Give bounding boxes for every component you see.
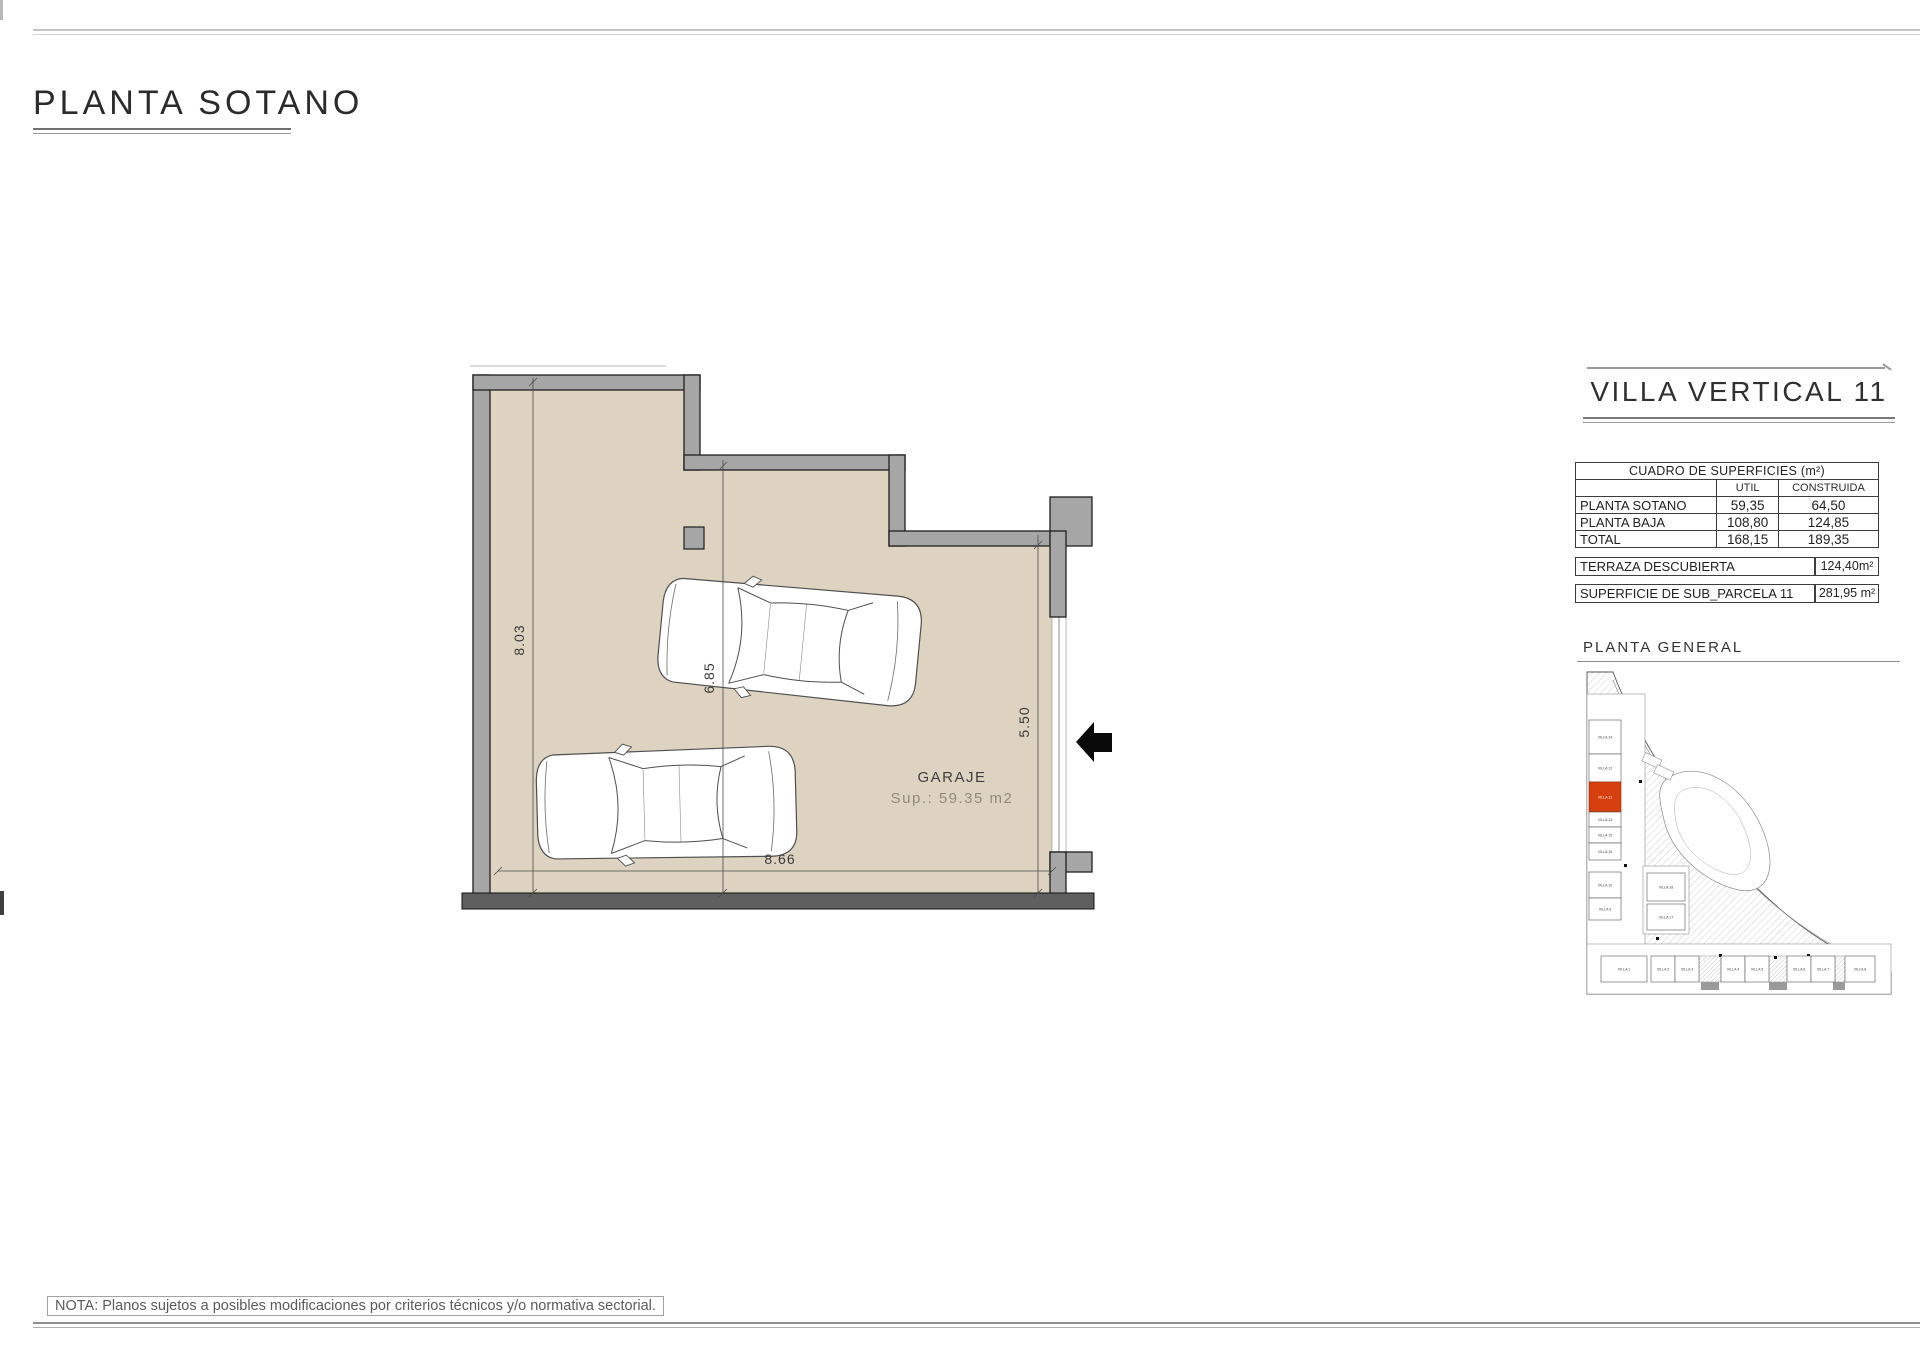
drawing-sheet: PLANTA SOTANO [0,0,1920,1356]
page-title-underline-2 [33,133,291,134]
row-util: 168,15 [1717,531,1779,548]
sheet-edge-mark [0,891,4,915]
pillar [684,527,704,549]
site-driveway [1769,982,1787,990]
site-plan-title: PLANTA GENERAL [1583,639,1743,656]
site-unit-label: VILLA 7 [1817,967,1830,971]
villa-title-underline-2 [1583,422,1895,423]
terraza-row: TERRAZA DESCUBIERTA 124,40m² [1575,557,1879,576]
site-unit-label: VILLA 4 [1727,967,1740,971]
surfaces-table-title: CUADRO DE SUPERFICIES (m²) [1576,463,1879,480]
parcela-label: SUPERFICIE DE SUB_PARCELA 11 [1575,584,1815,603]
surfaces-col-util: UTIL [1717,480,1779,497]
site-driveway [1701,982,1719,990]
wall-top-2 [684,455,905,470]
surfaces-table: CUADRO DE SUPERFICIES (m²) UTIL CONSTRUI… [1575,462,1879,548]
wall-right-stub-bottom [1050,852,1066,895]
sheet-bottom-rule-2 [33,1327,1920,1328]
row-construida: 64,50 [1778,497,1878,514]
wall-left [473,375,490,895]
site-unit-label: VILLA 8 [1854,967,1867,971]
site-unit-label: VILLA 11 [1598,795,1612,799]
row-label: PLANTA SOTANO [1576,497,1717,514]
site-unit-label: VILLA 17 [1659,915,1674,919]
parcela-row: SUPERFICIE DE SUB_PARCELA 11 281,95 m² [1575,584,1879,603]
sheet-top-rule-2 [33,34,1920,35]
site-separator [1769,956,1787,982]
site-separator [1835,956,1845,982]
row-construida: 124,85 [1778,514,1878,531]
car-2 [535,740,797,869]
sheet-corner-mark [0,0,3,20]
villa-title: VILLA VERTICAL 11 [1583,376,1895,408]
site-unit-label: VILLA 6 [1793,967,1806,971]
dim-middle: 6.85 [701,662,717,693]
site-unit-label: VILLA 1 [1618,967,1631,971]
site-unit-label: VILLA 15 [1598,833,1613,837]
site-driveway [1833,982,1845,990]
row-util: 108,80 [1717,514,1779,531]
site-plan-title-underline [1577,661,1900,662]
table-row: PLANTA SOTANO 59,35 64,50 [1576,497,1879,514]
row-construida: 189,35 [1778,531,1878,548]
row-label: PLANTA BAJA [1576,514,1717,531]
entrance-arrow-icon [1076,722,1112,762]
parcela-value: 281,95 m² [1815,584,1879,603]
page-title-underline [33,128,291,130]
terraza-value: 124,40m² [1815,557,1879,576]
sheet-top-rule-1 [33,29,1920,31]
wall-bottom [462,893,1094,909]
surfaces-col-blank [1576,480,1717,497]
room-label: GARAJE [917,769,986,786]
villa-title-underline [1583,417,1895,419]
table-row: TOTAL 168,15 189,35 [1576,531,1879,548]
floor-plan: 8.03 6.85 5.50 8.66 GARAJE Sup.: 59.35 m… [430,340,1140,940]
site-unit-label: VILLA 10 [1598,883,1613,887]
site-unit-label: VILLA 14 [1598,735,1613,739]
surfaces-col-construida: CONSTRUIDA [1778,480,1878,497]
dim-left: 8.03 [511,624,527,655]
site-unit-label: VILLA 12 [1598,766,1613,770]
site-unit-label: VILLA 3 [1681,967,1694,971]
room-area-label: Sup.: 59.35 m2 [891,790,1014,807]
dim-right: 5.50 [1016,706,1032,737]
wall-top-1 [473,375,700,390]
row-util: 59,35 [1717,497,1779,514]
sheet-bottom-rule-1 [33,1322,1920,1324]
site-unit-label: VILLA 9 [1599,907,1612,911]
site-plan-map: VILLA 14VILLA 12VILLA 11VILLA 13VILLA 15… [1583,668,1895,998]
site-unit-label: VILLA 18 [1659,885,1674,889]
garage-door [1059,617,1066,852]
terraza-label: TERRAZA DESCUBIERTA [1575,557,1815,576]
panel-top-rule [1587,367,1885,369]
site-unit-label: VILLA 2 [1657,967,1670,971]
row-label: TOTAL [1576,531,1717,548]
site-unit-label: VILLA 16 [1598,850,1613,854]
site-unit-label: VILLA 13 [1598,818,1613,822]
wall-right-stub-top [1050,531,1066,617]
site-unit-label: VILLA 5 [1751,967,1764,971]
table-row: PLANTA BAJA 108,80 124,85 [1576,514,1879,531]
dim-bottom: 8.66 [764,851,795,867]
page-title: PLANTA SOTANO [33,84,363,123]
site-separator [1699,956,1721,982]
note-box: NOTA: Planos sujetos a posibles modifica… [47,1296,664,1316]
